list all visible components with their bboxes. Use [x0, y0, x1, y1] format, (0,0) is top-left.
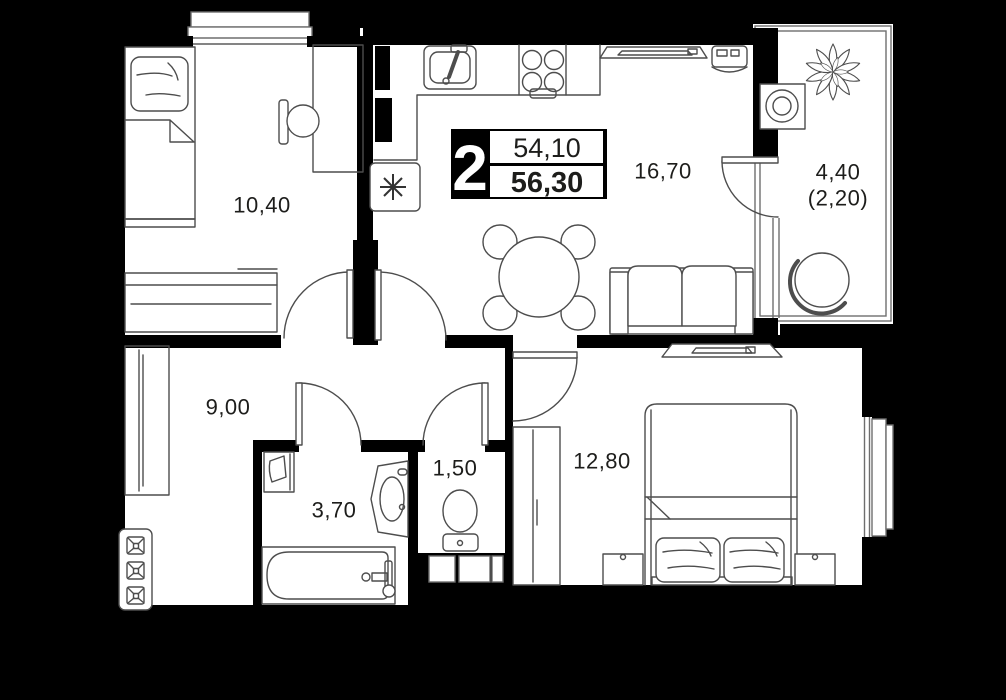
tv-console-kitchen	[600, 47, 707, 58]
pillow	[724, 538, 784, 582]
duct-niches	[429, 556, 503, 582]
label-bedroom-small: 10,40	[233, 193, 291, 218]
fridge	[370, 163, 420, 211]
tv-console-bedroom	[662, 344, 782, 357]
badge-living-area: 54,10	[513, 133, 581, 163]
shoe-bench	[119, 529, 152, 610]
nightstand-left	[603, 554, 643, 585]
dining-table	[499, 237, 579, 317]
label-balcony-reduced: (2,20)	[808, 186, 868, 211]
floor-plan: 10,40 16,70 4,40 (2,20) 9,00 3,70 1,50 1…	[0, 0, 1006, 700]
floor-bedroom-small	[116, 36, 372, 338]
bay-window-top	[188, 12, 312, 44]
window-bedroom-master	[862, 417, 893, 537]
pillow	[656, 538, 720, 582]
bath-sink	[371, 461, 408, 537]
label-balcony-total: 4,40	[816, 160, 861, 185]
badge-rooms-count: 2	[452, 132, 488, 204]
label-kitchen-living: 16,70	[634, 159, 692, 184]
label-toilet: 1,50	[433, 456, 478, 481]
floor-plan-canvas: 10,40 16,70 4,40 (2,20) 9,00 3,70 1,50 1…	[0, 0, 1006, 700]
washing-machine	[760, 84, 805, 129]
label-hallway: 9,00	[206, 395, 251, 420]
badge-total-area: 56,30	[511, 167, 584, 199]
sofa	[610, 266, 753, 334]
toilet-fixture	[443, 490, 478, 551]
nightstand-right	[795, 554, 835, 585]
label-bathroom: 3,70	[312, 498, 357, 523]
label-bedroom-master: 12,80	[573, 449, 631, 474]
unit-info-badge: 2 54,10 56,30	[451, 129, 607, 204]
